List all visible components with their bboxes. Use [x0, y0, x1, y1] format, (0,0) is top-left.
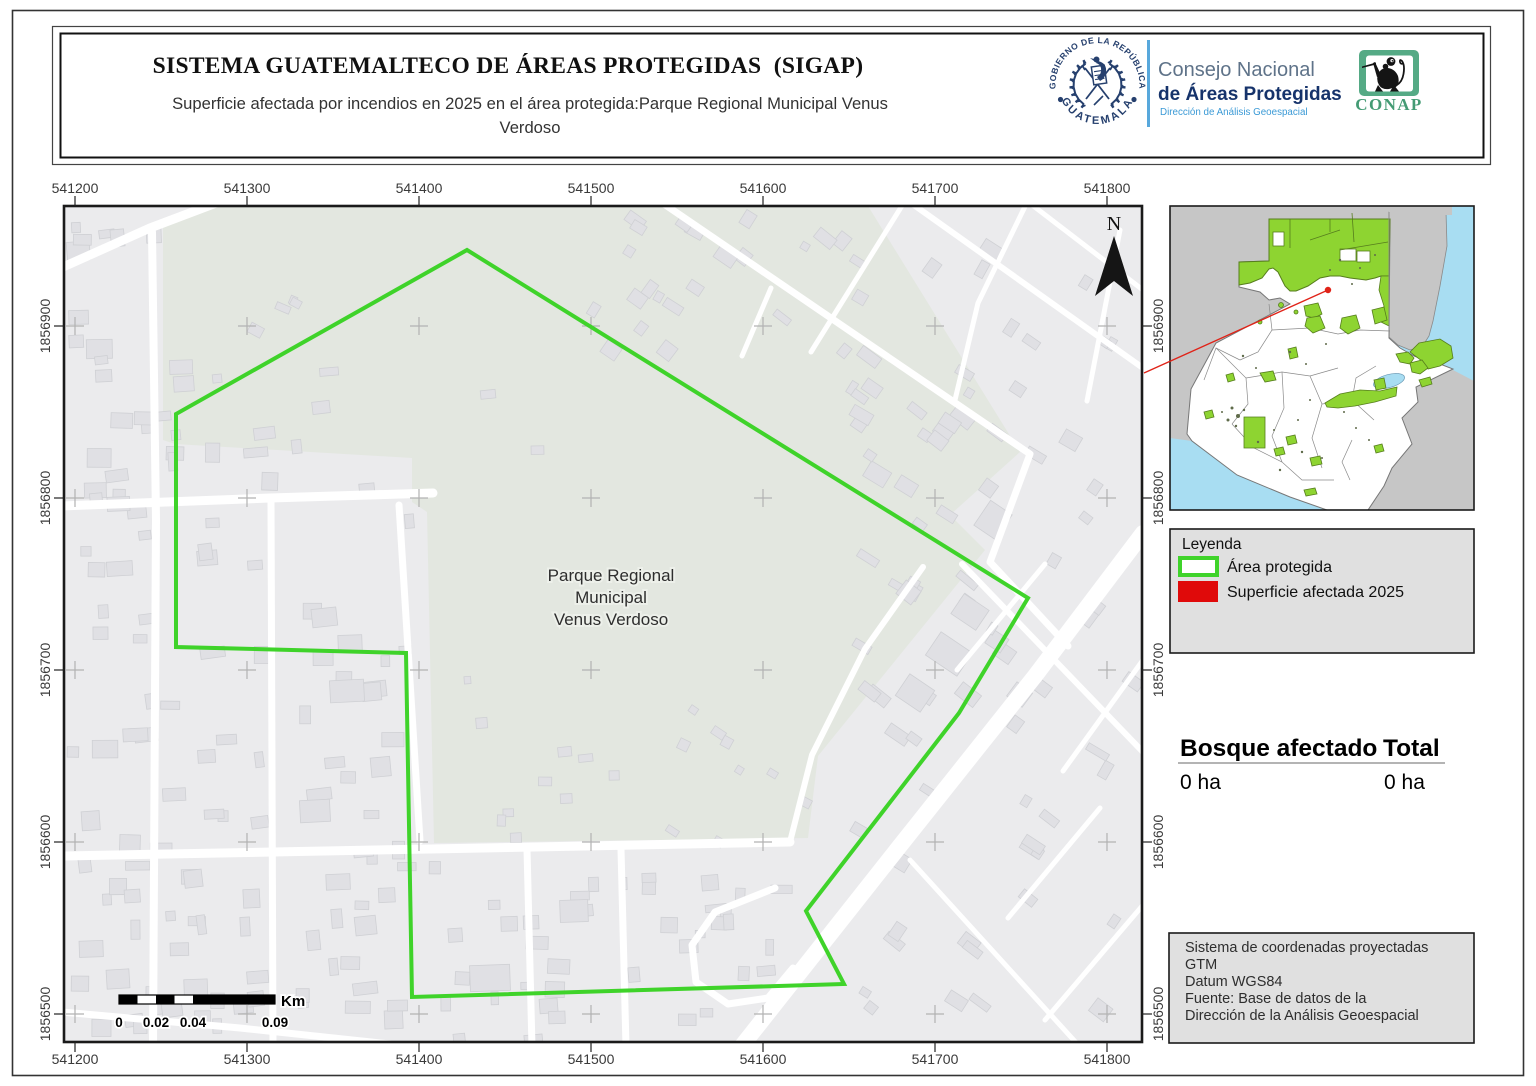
svg-text:GTM: GTM — [1185, 957, 1217, 973]
svg-text:1856500: 1856500 — [37, 987, 53, 1042]
svg-text:541400: 541400 — [396, 180, 443, 196]
svg-text:CONAP: CONAP — [1355, 95, 1422, 114]
svg-text:N: N — [1107, 213, 1121, 235]
svg-text:Sistema de coordenadas proyect: Sistema de coordenadas proyectadas — [1185, 940, 1428, 956]
svg-text:1856800: 1856800 — [1150, 471, 1166, 526]
svg-text:1856900: 1856900 — [37, 299, 53, 354]
svg-text:0.02: 0.02 — [143, 1015, 169, 1030]
svg-text:541500: 541500 — [568, 180, 615, 196]
svg-text:541200: 541200 — [52, 1051, 99, 1067]
svg-text:541600: 541600 — [740, 1051, 787, 1067]
svg-text:GUATEMALA: GUATEMALA — [1059, 96, 1137, 127]
svg-text:Dirección de la Análisis Geoes: Dirección de la Análisis Geoespacial — [1185, 1008, 1419, 1024]
svg-text:541500: 541500 — [568, 1051, 615, 1067]
svg-text:541300: 541300 — [224, 180, 271, 196]
svg-text:Fuente: Base de datos de la: Fuente: Base de datos de la — [1185, 991, 1367, 1007]
svg-text:1856500: 1856500 — [1150, 987, 1166, 1042]
svg-text:541800: 541800 — [1084, 180, 1131, 196]
svg-text:541600: 541600 — [740, 180, 787, 196]
svg-text:Parque Regional: Parque Regional — [548, 566, 675, 585]
svg-text:Km: Km — [281, 993, 305, 1010]
svg-text:1856900: 1856900 — [1150, 299, 1166, 354]
svg-text:Bosque afectado: Bosque afectado — [1180, 735, 1377, 762]
svg-text:0 ha: 0 ha — [1384, 771, 1425, 794]
svg-text:Leyenda: Leyenda — [1182, 536, 1242, 553]
svg-text:0.04: 0.04 — [180, 1015, 207, 1030]
svg-text:1856600: 1856600 — [1150, 815, 1166, 870]
svg-text:Superficie afectada 2025: Superficie afectada 2025 — [1227, 584, 1404, 601]
svg-text:1856700: 1856700 — [1150, 643, 1166, 698]
svg-text:1856800: 1856800 — [37, 471, 53, 526]
svg-text:Datum WGS84: Datum WGS84 — [1185, 974, 1283, 990]
svg-text:541700: 541700 — [912, 1051, 959, 1067]
svg-text:541300: 541300 — [224, 1051, 271, 1067]
svg-text:Total: Total — [1383, 735, 1440, 762]
svg-text:1856700: 1856700 — [37, 643, 53, 698]
svg-text:541200: 541200 — [52, 180, 99, 196]
svg-text:541700: 541700 — [912, 180, 959, 196]
svg-text:0.09: 0.09 — [262, 1015, 288, 1030]
svg-text:1856600: 1856600 — [37, 815, 53, 870]
svg-text:541400: 541400 — [396, 1051, 443, 1067]
svg-text:541800: 541800 — [1084, 1051, 1131, 1067]
svg-text:Municipal: Municipal — [575, 588, 647, 607]
svg-text:0: 0 — [115, 1015, 123, 1030]
svg-text:0 ha: 0 ha — [1180, 771, 1221, 794]
svg-text:Venus Verdoso: Venus Verdoso — [554, 610, 668, 629]
svg-text:Área protegida: Área protegida — [1227, 557, 1332, 576]
